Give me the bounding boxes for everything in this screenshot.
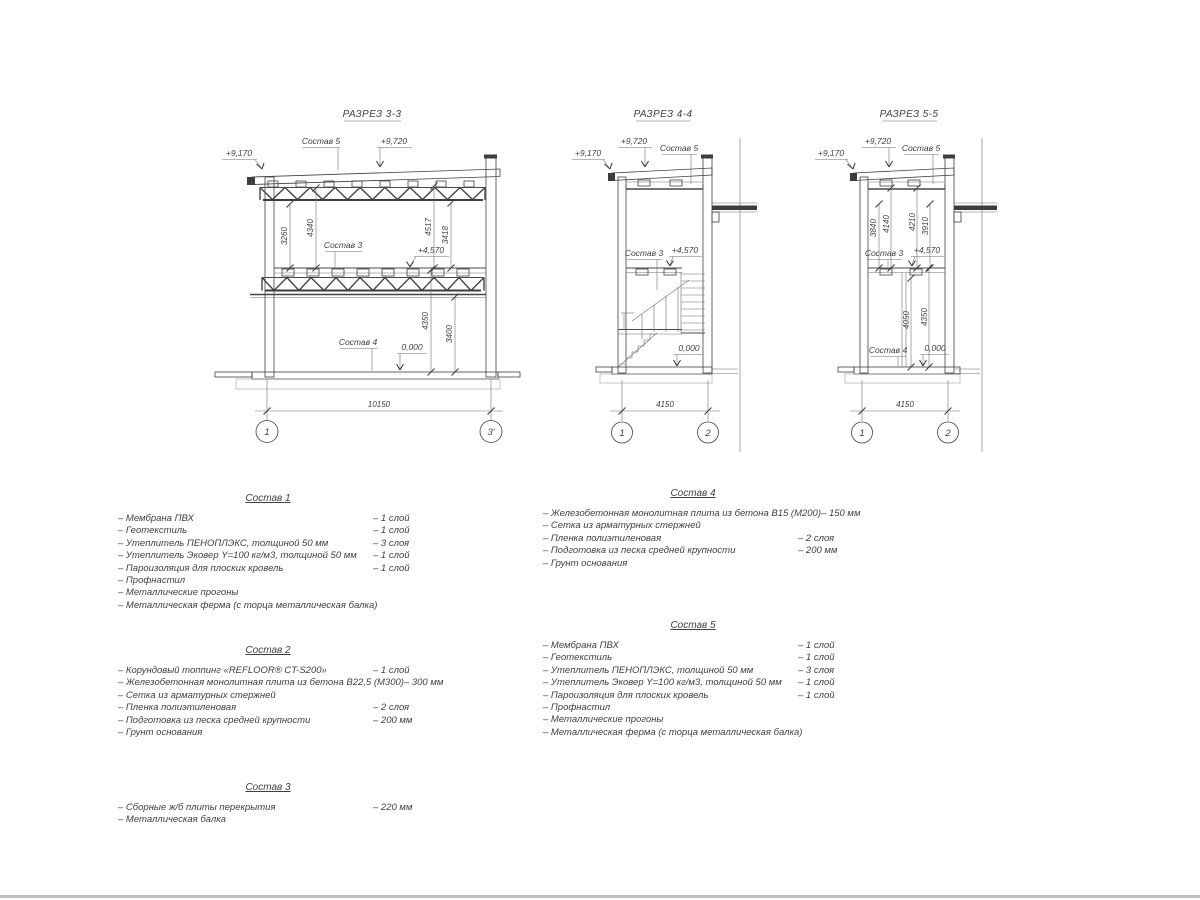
section-3-3: РАЗРЕЗ 3-3: [215, 109, 520, 443]
list-item: – Грунт основания: [118, 727, 418, 739]
item-value: [373, 575, 418, 587]
dim-3418: 3418: [441, 226, 450, 244]
item-name: – Сборные ж/б плиты перекрытия: [118, 802, 373, 814]
item-name: – Сетка из арматурных стержней: [543, 520, 798, 532]
item-value: – 300 мм: [404, 677, 449, 689]
item-value: – 220 мм: [373, 802, 418, 814]
composition-3-title: Состав 3: [118, 782, 418, 793]
dim-4050: 4050: [902, 311, 911, 329]
item-name: – Сетка из арматурных стержней: [118, 690, 373, 702]
item-name: – Мембрана ПВХ: [118, 513, 373, 525]
item-value: – 1 слой: [373, 550, 418, 562]
list-item: – Сетка из арматурных стержней: [118, 690, 418, 702]
section-4-4-title: РАЗРЕЗ 4-4: [634, 109, 693, 120]
dim-3840: 3840: [869, 219, 878, 237]
list-item: – Подготовка из песка средней крупности–…: [118, 715, 418, 727]
level-mid: +4,570: [418, 245, 445, 255]
axis-label-1: 1: [264, 427, 269, 438]
dim-4350: 4350: [920, 308, 929, 326]
list-item: – Металлическая балка: [118, 814, 418, 826]
list-item: – Геотекстиль– 1 слой: [543, 652, 843, 664]
dim-span-4150: 4150: [656, 400, 674, 409]
item-value: – 1 слой: [373, 563, 418, 575]
list-item: – Пленка полиэтиленовая– 2 слоя: [118, 702, 418, 714]
item-name: – Утеплитель ПЕНОПЛЭКС, толщиной 50 мм: [118, 538, 373, 550]
comp4-callout: Состав 4: [869, 345, 908, 355]
comp4-callout: Состав 4: [339, 337, 378, 347]
item-value: [802, 727, 847, 739]
list-item: – Мембрана ПВХ– 1 слой: [543, 640, 843, 652]
list-item: – Подготовка из песка средней крупности–…: [543, 545, 843, 557]
dim-4140: 4140: [882, 215, 891, 233]
item-name: – Грунт основания: [543, 558, 798, 570]
composition-2-list: Состав 2 – Корундовый топпинг «REFLOOR® …: [118, 645, 418, 739]
composition-3-list: Состав 3 – Сборные ж/б плиты перекрытия–…: [118, 782, 418, 827]
composition-4-title: Состав 4: [543, 488, 843, 499]
composition-2-title: Состав 2: [118, 645, 418, 656]
item-name: – Металлические прогоны: [543, 714, 798, 726]
section-3-3-annotations: Состав 5 +9,720 +9,170 Состав 3 +4,570 С…: [222, 136, 449, 371]
composition-4-list: Состав 4 – Железобетонная монолитная пли…: [543, 488, 843, 570]
comp3-callout: Состав 3: [324, 240, 363, 250]
dim-4210: 4210: [908, 213, 917, 231]
list-item: – Геотекстиль– 1 слой: [118, 525, 418, 537]
axis-label-3: 3': [487, 427, 495, 438]
item-name: – Металлическая балка: [118, 814, 373, 826]
item-value: – 1 слой: [373, 513, 418, 525]
section-5-5-title: РАЗРЕЗ 5-5: [880, 109, 939, 120]
item-name: – Пароизоляция для плоских кровель: [543, 690, 798, 702]
section-4-4-dimensions: 4150 1 2: [610, 380, 720, 443]
list-item: – Утеплитель ПЕНОПЛЭКС, толщиной 50 мм– …: [118, 538, 418, 550]
list-item: – Металлическая ферма (с торца металличе…: [543, 727, 843, 739]
level-roof: +9,720: [621, 136, 648, 146]
item-value: – 200 мм: [373, 715, 418, 727]
item-name: – Утеплитель ПЕНОПЛЭКС, толщиной 50 мм: [543, 665, 798, 677]
list-item: – Пароизоляция для плоских кровель– 1 сл…: [118, 563, 418, 575]
list-item: – Сетка из арматурных стержней: [543, 520, 843, 532]
comp5-callout: Состав 5: [902, 143, 941, 153]
item-value: [798, 702, 843, 714]
item-name: – Геотекстиль: [118, 525, 373, 537]
item-value: [377, 600, 422, 612]
level-roof: +9,720: [381, 136, 408, 146]
dim-span-10150: 10150: [368, 400, 391, 409]
list-item: – Мембрана ПВХ– 1 слой: [118, 513, 418, 525]
item-value: [373, 814, 418, 826]
level-eave: +9,170: [818, 148, 845, 158]
item-name: – Утеплитель Эковер Y=100 кг/м3, толщино…: [118, 550, 373, 562]
item-value: [373, 690, 418, 702]
list-item: – Корундовый топпинг «REFLOOR® CT-S200»–…: [118, 665, 418, 677]
item-name: – Металлическая ферма (с торца металличе…: [543, 727, 802, 739]
item-name: – Подготовка из песка средней крупности: [543, 545, 798, 557]
item-value: – 2 слоя: [373, 702, 418, 714]
section-5-5-dimensions: 3840 4140 4210 3910 4050 4350 4150 1 2: [850, 185, 960, 444]
list-item: – Железобетонная монолитная плита из бет…: [543, 508, 843, 520]
section-5-5: РАЗРЕЗ 5-5: [815, 109, 997, 452]
item-name: – Утеплитель Эковер Y=100 кг/м3, толщино…: [543, 677, 798, 689]
level-zero: 0,000: [678, 343, 700, 353]
sections-drawing: РАЗРЕЗ 3-3: [0, 0, 1200, 470]
axis-label-2: 2: [704, 428, 711, 439]
item-value: [798, 714, 843, 726]
composition-5-list: Состав 5 – Мембрана ПВХ– 1 слой – Геотек…: [543, 620, 843, 739]
item-value: – 1 слой: [373, 665, 418, 677]
dim-3400: 3400: [445, 325, 454, 343]
level-roof: +9,720: [865, 136, 892, 146]
dim-4517: 4517: [424, 218, 433, 236]
dim-span-4150: 4150: [896, 400, 914, 409]
level-eave: +9,170: [226, 148, 253, 158]
horizontal-scrollbar[interactable]: [0, 895, 1200, 898]
comp5-callout: Состав 5: [302, 136, 341, 146]
section-4-4-structure: [596, 138, 757, 452]
axis-label-1: 1: [859, 428, 864, 439]
item-value: [373, 587, 418, 599]
level-mid: +4,570: [914, 245, 941, 255]
item-name: – Металлические прогоны: [118, 587, 373, 599]
list-item: – Утеплитель ПЕНОПЛЭКС, толщиной 50 мм– …: [543, 665, 843, 677]
list-item: – Утеплитель Эковер Y=100 кг/м3, толщино…: [118, 550, 418, 562]
section-3-3-dimensions: 3260 4340 4517 3418 4350 3400 10150 1: [255, 183, 503, 443]
level-zero: 0,000: [924, 343, 946, 353]
item-name: – Железобетонная монолитная плита из бет…: [543, 508, 821, 520]
item-value: – 1 слой: [373, 525, 418, 537]
item-name: – Профнастил: [543, 702, 798, 714]
item-value: – 1 слой: [798, 677, 843, 689]
list-item: – Металлические прогоны: [543, 714, 843, 726]
drawing-sheet: РАЗРЕЗ 3-3: [0, 0, 1200, 900]
dim-4350: 4350: [421, 312, 430, 330]
axis-label-1: 1: [619, 428, 624, 439]
composition-5-title: Состав 5: [543, 620, 843, 631]
item-value: – 3 слоя: [373, 538, 418, 550]
composition-1-list: Состав 1 – Мембрана ПВХ– 1 слой – Геотек…: [118, 493, 418, 612]
composition-1-title: Состав 1: [118, 493, 418, 504]
list-item: – Металлические прогоны: [118, 587, 418, 599]
item-value: – 2 слоя: [798, 533, 843, 545]
item-name: – Профнастил: [118, 575, 373, 587]
item-name: – Корундовый топпинг «REFLOOR® CT-S200»: [118, 665, 373, 677]
item-name: – Грунт основания: [118, 727, 373, 739]
list-item: – Профнастил: [118, 575, 418, 587]
item-name: – Пленка полиэтиленовая: [543, 533, 798, 545]
comp5-callout: Состав 5: [660, 143, 699, 153]
item-name: – Мембрана ПВХ: [543, 640, 798, 652]
item-value: [373, 727, 418, 739]
level-mid: +4,570: [672, 245, 699, 255]
item-name: – Пароизоляция для плоских кровель: [118, 563, 373, 575]
list-item: – Пароизоляция для плоских кровель– 1 сл…: [543, 690, 843, 702]
list-item: – Профнастил: [543, 702, 843, 714]
item-name: – Подготовка из песка средней крупности: [118, 715, 373, 727]
level-eave: +9,170: [575, 148, 602, 158]
section-4-4: РАЗРЕЗ 4-4: [572, 109, 757, 452]
item-name: – Пленка полиэтиленовая: [118, 702, 373, 714]
section-3-3-structure: [215, 155, 520, 390]
list-item: – Сборные ж/б плиты перекрытия– 220 мм: [118, 802, 418, 814]
level-zero: 0,000: [401, 342, 423, 352]
item-value: – 1 слой: [798, 652, 843, 664]
dim-4340: 4340: [306, 219, 315, 237]
dim-3260: 3260: [280, 227, 289, 245]
list-item: – Железобетонная монолитная плита из бет…: [118, 677, 418, 689]
item-value: [798, 520, 843, 532]
comp3-callout: Состав 3: [625, 248, 664, 258]
item-value: [798, 558, 843, 570]
item-name: – Геотекстиль: [543, 652, 798, 664]
comp3-callout: Состав 3: [865, 248, 904, 258]
item-name: – Металлическая ферма (с торца металличе…: [118, 600, 377, 612]
list-item: – Утеплитель Эковер Y=100 кг/м3, толщино…: [543, 677, 843, 689]
axis-label-2: 2: [944, 428, 951, 439]
list-item: – Грунт основания: [543, 558, 843, 570]
item-value: – 1 слой: [798, 690, 843, 702]
item-value: – 150 мм: [821, 508, 866, 520]
section-4-4-annotations: Состав 5 +9,720 +9,170 Состав 3 +4,570 0…: [572, 136, 703, 366]
item-name: – Железобетонная монолитная плита из бет…: [118, 677, 404, 689]
list-item: – Пленка полиэтиленовая– 2 слоя: [543, 533, 843, 545]
item-value: – 3 слоя: [798, 665, 843, 677]
dim-3910: 3910: [921, 217, 930, 235]
item-value: – 200 мм: [798, 545, 843, 557]
list-item: – Металлическая ферма (с торца металличе…: [118, 600, 418, 612]
item-value: – 1 слой: [798, 640, 843, 652]
section-3-3-title: РАЗРЕЗ 3-3: [343, 109, 402, 120]
